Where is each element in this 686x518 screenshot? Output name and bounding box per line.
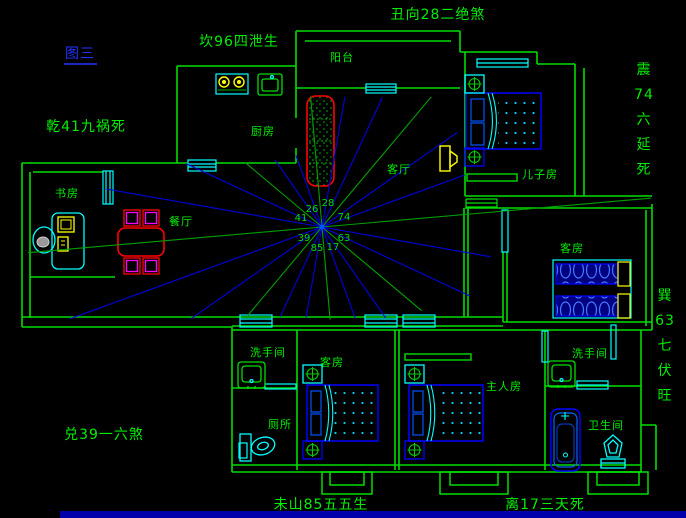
dining-chair [124, 210, 140, 226]
stove [216, 74, 248, 94]
pillow [413, 391, 423, 412]
compass-number-17: 17 [327, 242, 340, 253]
room-label-balcony: 阳台 [330, 50, 354, 64]
window-son-bottom [466, 199, 497, 207]
compass-number-85: 85 [311, 243, 324, 254]
dining-chair [143, 210, 159, 226]
compass-number-26: 26 [306, 204, 319, 215]
status-strip [60, 511, 686, 518]
twin-beds-guest-east [553, 260, 631, 318]
compass-number-28: 28 [322, 198, 335, 209]
annotation-annot-zhen: 震74六延死 [634, 62, 654, 178]
dining-chair [124, 258, 140, 274]
bed-guest-south [307, 385, 378, 441]
nightstand-lamp [465, 148, 484, 166]
bathtub [551, 409, 580, 471]
annotation-annot-li: 离17三天死 [505, 496, 585, 513]
compass-ray-185 [28, 227, 322, 253]
plant-box [307, 96, 334, 186]
room-label-washroom-east: 洗手间 [572, 346, 608, 360]
pillow [311, 414, 321, 435]
nightstand-lamp [405, 365, 424, 383]
pillow [413, 414, 423, 435]
porch-step-inner [597, 472, 639, 485]
annotation-annot-chou: 丑向28二绝煞 [391, 7, 486, 23]
pillow [471, 99, 484, 121]
dining-chair [143, 258, 159, 274]
room-label-son-room: 儿子房 [522, 168, 558, 181]
compass-ray-170 [106, 189, 322, 227]
pillow [311, 391, 321, 412]
annotation-fig-label: 图三 [65, 46, 95, 62]
room-label-guest-room-east: 客房 [560, 241, 584, 255]
annotation-annot-wei: 未山85五五生 [274, 497, 369, 513]
bed-master [409, 385, 483, 441]
bed-headboard [618, 262, 630, 286]
room-label-kitchen: 厨房 [251, 125, 275, 138]
washbasin-east [548, 361, 575, 388]
annotation-annot-dui: 兑39一六煞 [64, 427, 144, 443]
compass-ray-275 [322, 227, 330, 320]
study-desk-set [33, 213, 84, 269]
kitchen-sink [258, 74, 282, 95]
toilet-west [240, 434, 277, 461]
nightstand-lamp [465, 75, 484, 93]
porch-steps [322, 472, 648, 494]
compass-number-74: 74 [338, 212, 351, 223]
annotation-annot-kan: 坎96四泄生 [199, 34, 279, 50]
window-study [103, 171, 113, 204]
window-son-top [477, 59, 528, 67]
shelf-master-room [405, 354, 471, 360]
room-label-bathroom: 卫生间 [588, 418, 624, 432]
computer-screen [61, 220, 71, 229]
mattress [334, 388, 376, 438]
room-label-guest-room-south: 客房 [320, 355, 344, 369]
door-guest-room [502, 210, 508, 252]
computer-monitor [58, 217, 74, 232]
compass-number-41: 41 [295, 213, 308, 224]
dining-set [118, 210, 164, 274]
toilet-east [601, 435, 625, 468]
single-bed [556, 264, 618, 284]
annotation-annot-xun: 巽63七伏旺 [655, 288, 675, 404]
cad-floorplan-screenshot: 阳台厨房书房餐厅客厅儿子房客房客房主人房洗手间厕所洗手间卫生间 26284174… [0, 0, 686, 518]
washbasin-west [238, 362, 265, 389]
floorplan-canvas: 阳台厨房书房餐厅客厅儿子房客房客房主人房洗手间厕所洗手间卫生间 26284174… [0, 0, 686, 518]
porch-step-inner [330, 472, 364, 485]
bed-son-room [466, 93, 541, 149]
mattress [436, 388, 481, 438]
room-label-living: 客厅 [387, 162, 411, 176]
room-label-study: 书房 [55, 187, 79, 200]
pillow [471, 123, 484, 145]
compass-center [320, 225, 325, 230]
window-balcony [366, 84, 396, 93]
annotation-annot-qian: 乾41九祸死 [46, 119, 126, 135]
window-kitchen [188, 160, 216, 171]
window-bath-divider [577, 381, 608, 389]
room-label-dining: 餐厅 [169, 214, 193, 228]
bed-headboard [618, 294, 630, 318]
dining-table [118, 228, 164, 256]
single-bed [556, 296, 618, 316]
compass-number-63: 63 [338, 233, 351, 244]
desk-chair-seat [37, 237, 49, 247]
shelf-son-room [467, 174, 517, 181]
porch-step-inner [450, 472, 498, 485]
tv-speaker [440, 146, 457, 171]
room-label-toilet-room: 厕所 [268, 418, 292, 431]
nightstand-lamp [303, 441, 322, 459]
mattress [498, 96, 539, 146]
nightstand-lamp [405, 441, 424, 459]
compass-number-39: 39 [298, 233, 311, 244]
room-label-washroom-west: 洗手间 [250, 345, 286, 359]
room-label-master-room: 主人房 [486, 380, 522, 393]
